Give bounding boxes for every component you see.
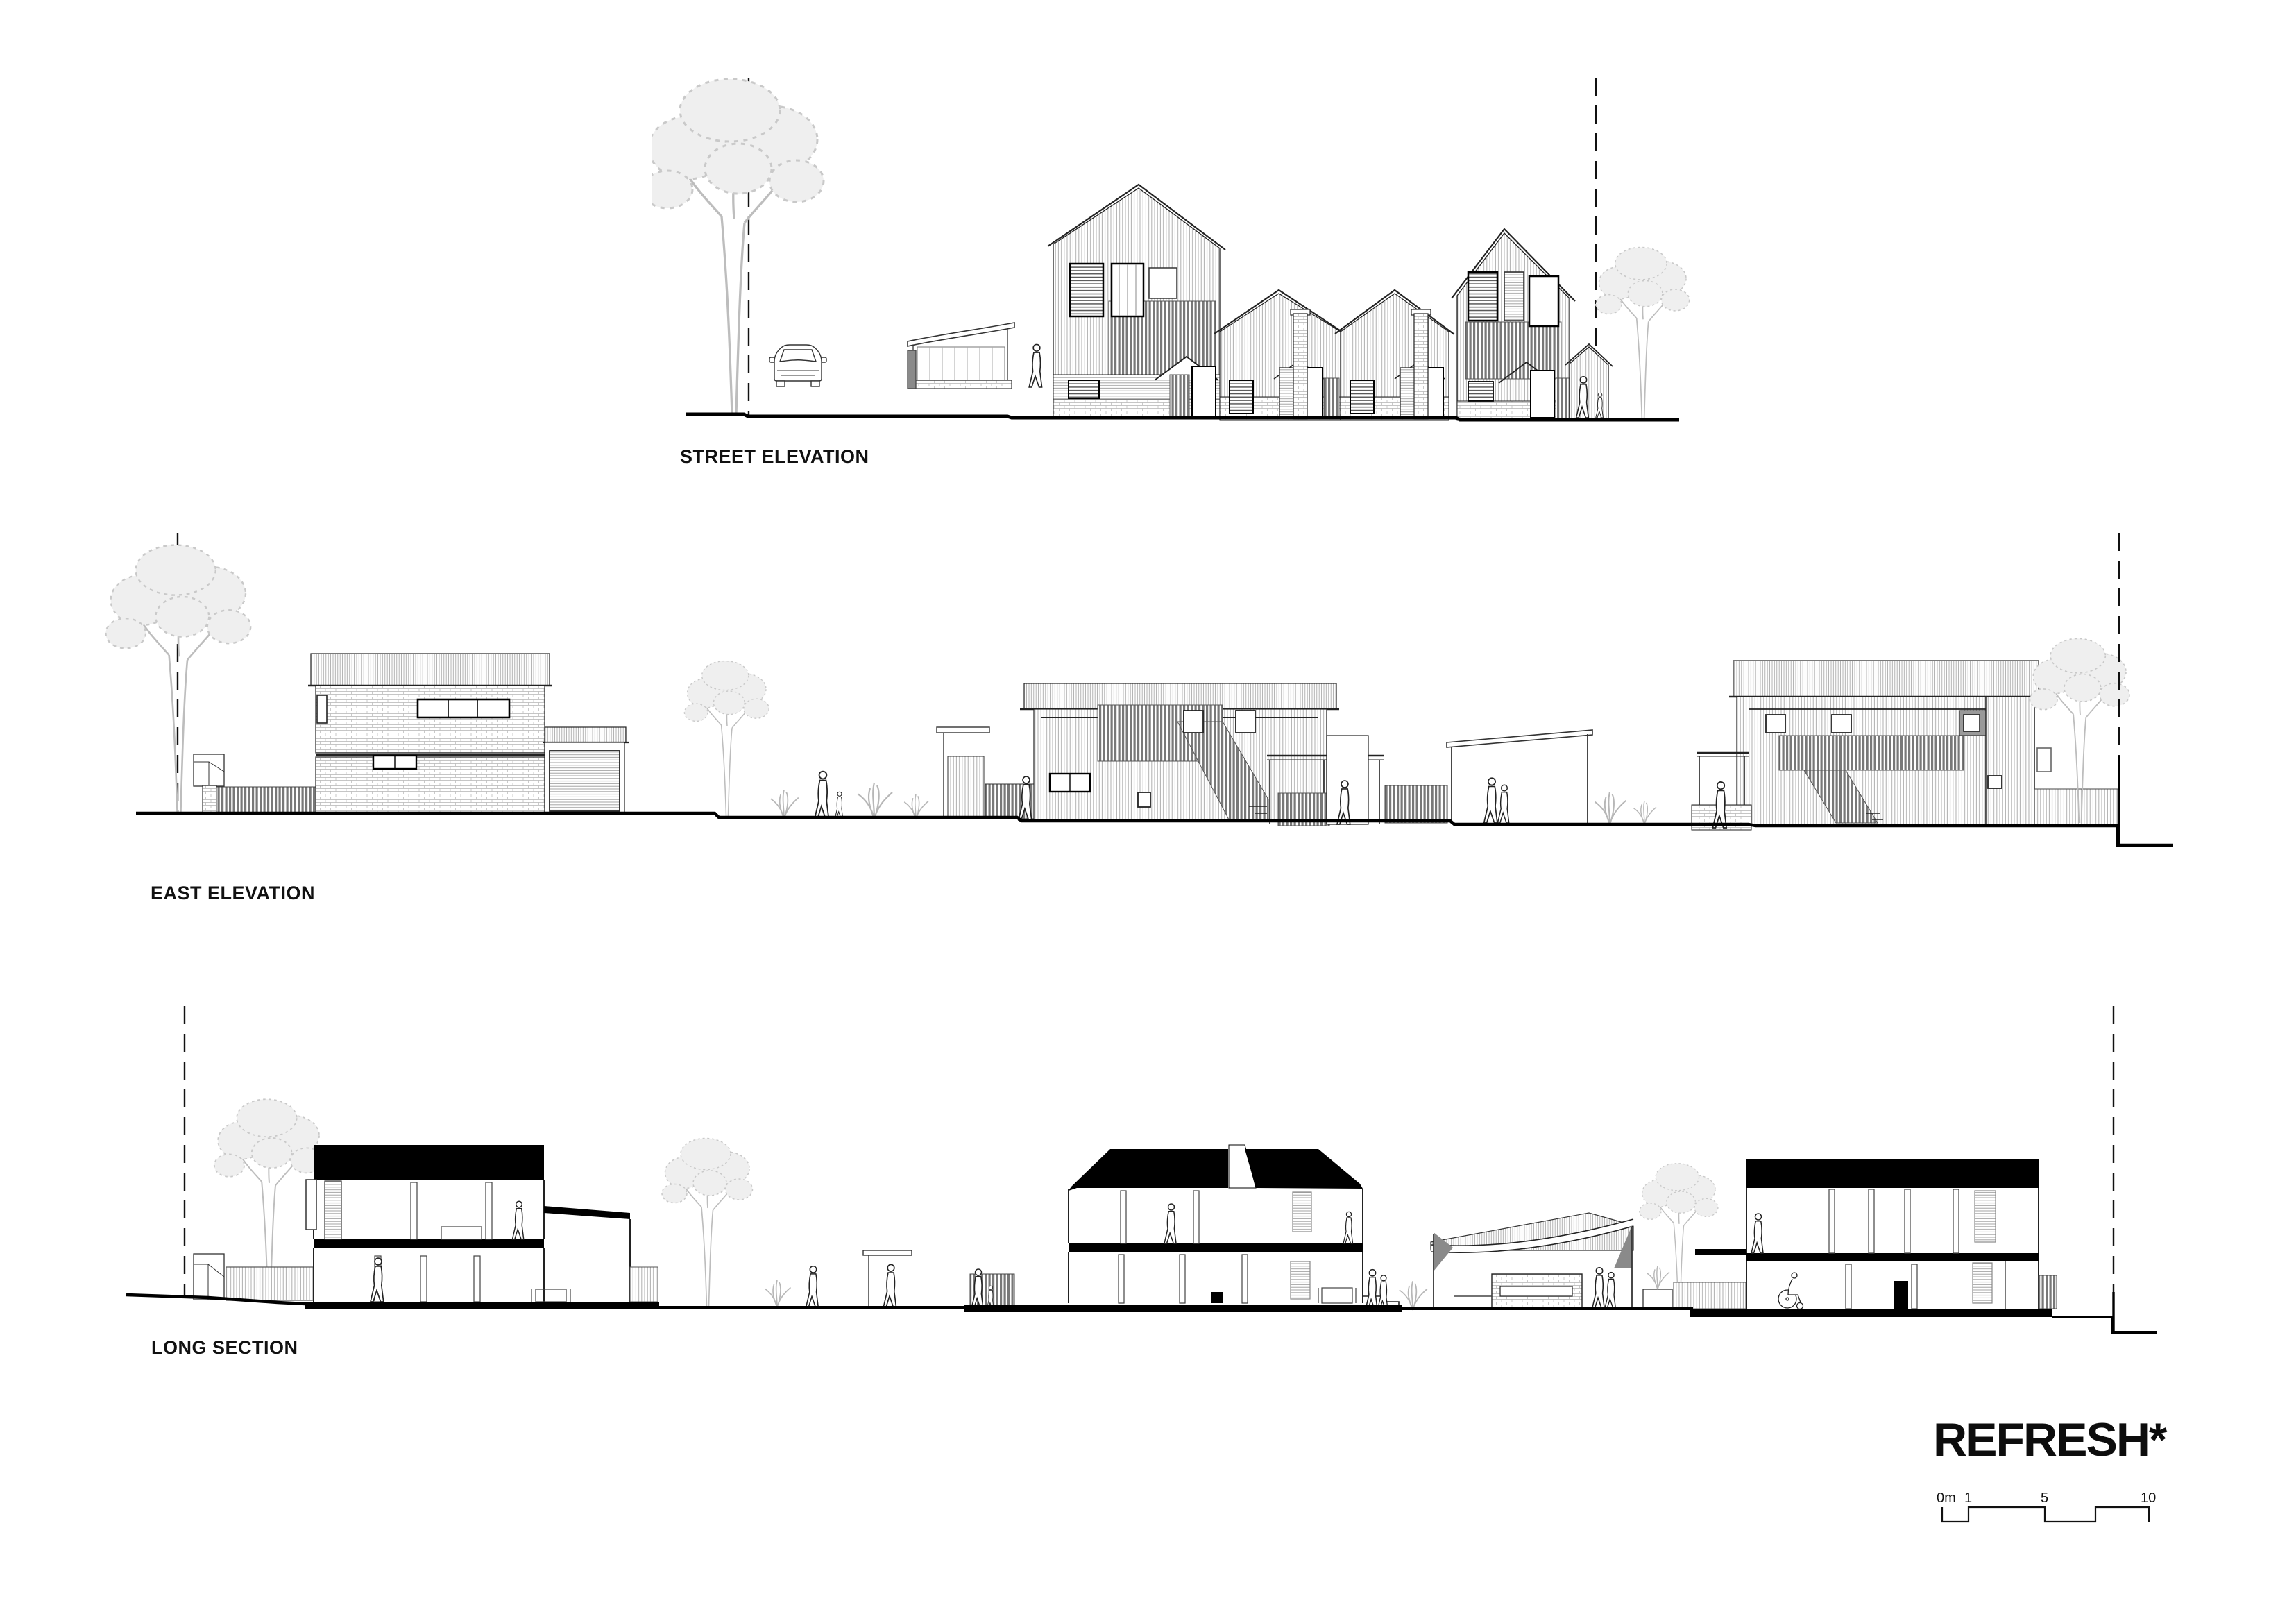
entry-gate <box>937 727 1034 819</box>
east-tree-middle <box>684 661 769 817</box>
architectural-drawing-sheet: STREET ELEVATION EAST ELEVATION LONG SEC… <box>0 0 2296 1623</box>
carport <box>1447 730 1592 823</box>
street-house-4 <box>1452 229 1613 420</box>
street-elevation-drawing <box>652 69 1707 472</box>
scale-label-0m: 0m <box>1937 1490 1956 1506</box>
car <box>769 345 826 386</box>
garden-plants <box>904 794 928 819</box>
scale-label-10: 10 <box>2141 1490 2156 1506</box>
street-house-1 <box>1048 185 1225 419</box>
pedestrian <box>1029 344 1041 387</box>
east-elevation-label: EAST ELEVATION <box>151 883 315 904</box>
section-ground <box>126 1295 2157 1332</box>
rear-fence <box>2034 789 2118 826</box>
person-under-carport <box>1484 778 1497 823</box>
street-house-3 <box>1335 290 1454 420</box>
garden-plants <box>1633 801 1656 824</box>
rear-wing <box>532 1206 630 1302</box>
street-carport-shed <box>908 323 1014 389</box>
rear-fence <box>2039 1275 2057 1309</box>
front-fence <box>203 785 316 814</box>
pedestrian-child <box>835 792 843 819</box>
scale-label-1: 1 <box>1964 1490 1972 1506</box>
person-seated <box>1343 1212 1353 1243</box>
scale-label-5: 5 <box>2041 1490 2048 1506</box>
person-in-pavilion <box>1592 1268 1605 1309</box>
letterbox <box>194 1254 224 1300</box>
pedestrian <box>1366 1270 1377 1310</box>
garden-plants <box>858 783 892 819</box>
street-elevation-label: STREET ELEVATION <box>680 446 869 468</box>
garden-plants <box>771 790 799 819</box>
wheelchair-person <box>1778 1273 1803 1309</box>
pedestrian <box>806 1266 819 1307</box>
section-house-left <box>306 1145 630 1302</box>
person-in-pavilion <box>1605 1273 1616 1309</box>
pedestrian-woman <box>815 772 828 819</box>
garden-plants <box>1595 792 1626 824</box>
pedestrian <box>883 1264 896 1307</box>
east-elevation-drawing <box>97 507 2200 909</box>
front-fence <box>226 1267 314 1300</box>
garden-plants <box>765 1280 791 1307</box>
section-tree-middle-left <box>662 1139 753 1307</box>
long-section-label: LONG SECTION <box>151 1337 298 1359</box>
east-house-right <box>1692 661 2051 830</box>
east-house-brick <box>308 654 629 813</box>
planter-box <box>1643 1266 1672 1309</box>
letterbox <box>194 754 224 786</box>
person-upper-floor <box>512 1201 523 1239</box>
refresh-logo: REFRESH* <box>1933 1413 2166 1467</box>
person-under-carport <box>1497 785 1508 823</box>
street-house-2 <box>1214 290 1346 420</box>
side-fence <box>1385 785 1447 823</box>
person-upper-floor <box>1164 1204 1176 1243</box>
side-fence <box>1674 1282 1746 1309</box>
street-tree-right <box>1596 247 1690 420</box>
planter-box-plants <box>1400 1281 1427 1310</box>
side-fence <box>630 1267 658 1302</box>
east-house-middle <box>1020 683 1384 826</box>
section-house-right <box>1695 1159 2039 1309</box>
long-section-drawing <box>104 985 2193 1346</box>
person-upper-floor <box>1751 1214 1763 1253</box>
